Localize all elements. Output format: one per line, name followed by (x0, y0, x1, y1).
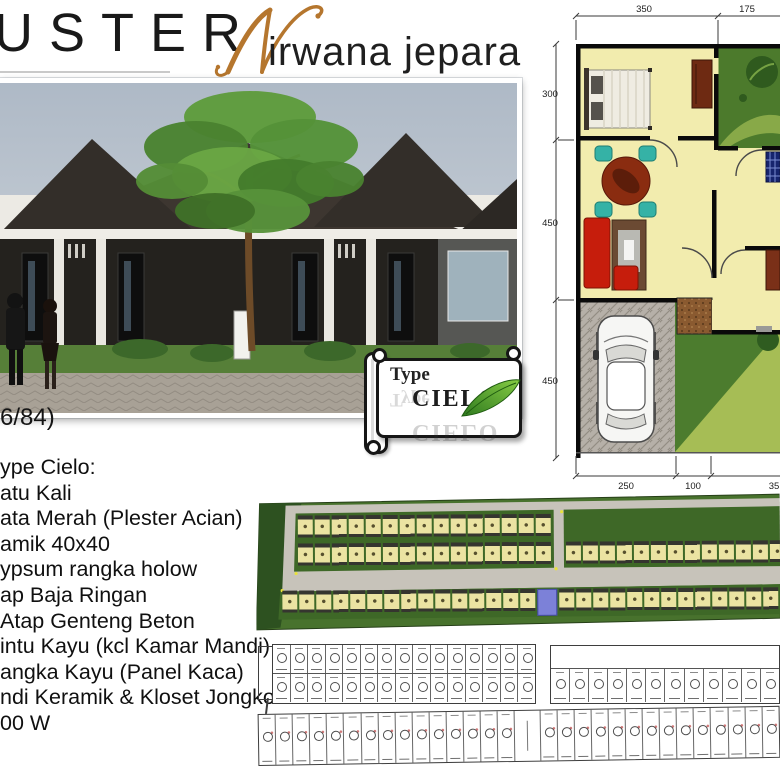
plot-cell (589, 669, 608, 702)
plot-cell (293, 714, 311, 764)
schematic-row (273, 674, 535, 702)
plot-cell (761, 669, 779, 702)
plot-cell (447, 712, 465, 762)
plot-cell (728, 707, 746, 757)
plot-schematic-drawing (256, 636, 780, 780)
house-plot (417, 515, 432, 540)
plot-cell (762, 707, 779, 757)
plot-cell (326, 645, 344, 673)
spec-line: intu Kayu (kcl Kamar Mandi) (0, 634, 256, 660)
house-plot (746, 587, 761, 614)
house-plot (383, 515, 398, 540)
house-plot (736, 540, 751, 565)
schematic-block-top-left (272, 644, 536, 704)
plot-cell (694, 708, 712, 758)
house-plot (315, 543, 330, 568)
house-plot (610, 588, 625, 615)
house-plot (435, 589, 450, 616)
schematic-left-block (258, 646, 273, 700)
house-plot (536, 542, 551, 567)
house-plot (593, 588, 608, 615)
plot-cell (466, 645, 484, 673)
sign-line1: Type (390, 364, 430, 386)
brochure-page: USTER irwana jepara (0, 0, 780, 780)
house-plot (282, 591, 297, 618)
bath-floor (677, 298, 712, 334)
dim-top-1: 350 (636, 4, 652, 15)
house-plot (617, 541, 632, 566)
house-plot (349, 515, 364, 540)
plot-cell (677, 708, 695, 758)
unit-size-caption: 6/84) (0, 404, 55, 432)
house-plot (451, 514, 466, 539)
house-plot (702, 541, 717, 566)
spec-line: angka Kayu (Panel Kaca) (0, 660, 256, 686)
house-plot (503, 589, 518, 616)
spec-line: 00 W (0, 711, 256, 737)
house-plot (468, 514, 483, 539)
siteplan-row-top-right (566, 540, 780, 566)
plot-cell (515, 711, 541, 761)
house-plot (315, 515, 330, 540)
house-plot (519, 542, 534, 567)
plot-cell (574, 710, 592, 760)
plot-cell (291, 645, 309, 673)
house-plot (763, 587, 778, 614)
plot-cell (448, 674, 466, 702)
plot-cell (723, 669, 742, 702)
plot-cell (273, 674, 291, 702)
house-plot (400, 515, 415, 540)
house-plot (719, 540, 734, 565)
plot-cell (704, 669, 723, 702)
house-plot (298, 543, 313, 568)
bed (584, 68, 652, 130)
plot-cell (466, 674, 484, 702)
house-plot (695, 588, 710, 615)
plot-cell (378, 674, 396, 702)
spec-list: ype Cielo: atu Kali ata Merah (Plester A… (0, 455, 256, 737)
house-plot (333, 590, 348, 617)
plot-cell (518, 674, 535, 702)
blue-grid-panel (766, 152, 780, 182)
wardrobe (692, 60, 712, 108)
house-plot (627, 588, 642, 615)
plot-cell (327, 714, 345, 764)
house-plot (559, 589, 574, 616)
plot-cell (626, 709, 644, 759)
spec-line: atu Kali (0, 481, 256, 507)
house-plot (451, 542, 466, 567)
dim-top-2: 175 (739, 4, 755, 15)
plot-cell (361, 645, 379, 673)
plot-cell (501, 645, 519, 673)
house-plot (712, 588, 727, 615)
plot-cell (308, 674, 326, 702)
house-plot (366, 543, 381, 568)
plot-cell (310, 714, 328, 764)
house-plot (469, 589, 484, 616)
plot-cell (745, 707, 763, 757)
dim-left-3: 450 (542, 376, 558, 387)
leaf-icon (460, 376, 522, 418)
plot-cell (308, 645, 326, 673)
house-plot (668, 541, 683, 566)
plot-cell (430, 712, 448, 762)
house-plot (661, 588, 676, 615)
project-name: irwana jepara (268, 30, 521, 75)
plot-cell (378, 713, 396, 763)
plot-cell (361, 713, 379, 763)
pin-icon (366, 440, 381, 455)
plot-cell (396, 674, 414, 702)
header-divider (0, 71, 170, 73)
plot-cell (344, 713, 362, 763)
house-plot (583, 541, 598, 566)
spec-line: Atap Genteng Beton (0, 609, 256, 635)
schematic-bottom-strip (258, 706, 780, 766)
dim-left-2: 450 (542, 218, 558, 229)
siteplan-row-bottom (282, 587, 780, 617)
spec-line: ata Merah (Plester Acian) (0, 506, 256, 532)
plot-cell (395, 713, 413, 763)
plot-cell (361, 674, 379, 702)
plot-cell (273, 645, 291, 673)
plot-cell (608, 709, 626, 759)
house-plot (349, 543, 364, 568)
facade (0, 239, 517, 351)
house-plot (502, 542, 517, 567)
house-plot (678, 588, 693, 615)
schematic-row (259, 707, 780, 765)
plot-cell (685, 669, 704, 702)
house-plot (316, 590, 331, 617)
type-cielo-sign: Type CIELO Type CIELO (364, 336, 524, 440)
plot-cell (551, 669, 570, 702)
plot-cell (259, 715, 277, 765)
house-plot (634, 541, 649, 566)
house-plot (770, 540, 780, 565)
plot-cell (742, 669, 761, 702)
house-plot (644, 588, 659, 615)
plot-cell (431, 645, 449, 673)
plot-cell (665, 669, 684, 702)
plot-cell (483, 645, 501, 673)
plot-cell (501, 674, 519, 702)
plot-cell (343, 674, 361, 702)
house-plot (350, 590, 365, 617)
plot-cell (711, 708, 729, 758)
siteplan-row-top-left-2 (298, 542, 554, 569)
plot-cell (412, 712, 430, 762)
schematic-row (273, 645, 535, 674)
plan-garden (718, 48, 780, 148)
spec-line: ndi Keramik & Kloset Jongkok (0, 685, 256, 711)
house-plot (417, 543, 432, 568)
house-plot (452, 589, 467, 616)
house-plot (520, 589, 535, 616)
plot-cell (557, 710, 575, 760)
plot-cell (660, 708, 678, 758)
house-plot (753, 540, 768, 565)
site-master-plan (256, 490, 780, 636)
house-plot (486, 589, 501, 616)
plot-cell (608, 669, 627, 702)
wall-opening (714, 58, 719, 74)
plot-cell (570, 669, 589, 702)
car-top-view (593, 316, 659, 442)
rear-terrace (712, 300, 780, 335)
spec-line: ap Baja Ringan (0, 583, 256, 609)
house-plot (651, 541, 666, 566)
plot-cell (326, 674, 344, 702)
sign-line2-reflection: CIELO (412, 418, 499, 445)
house-plot (401, 590, 416, 617)
spec-line: ype Cielo: (0, 455, 256, 481)
house-plot (537, 589, 557, 616)
plot-cell (448, 645, 466, 673)
house-plot (366, 515, 381, 540)
plot-cell (396, 645, 414, 673)
schematic-row (551, 668, 779, 702)
house-plot (485, 542, 500, 567)
plot-cell (591, 709, 609, 759)
pin-icon (506, 346, 521, 361)
plot-cell (518, 645, 535, 673)
spec-line: ypsum rangka holow (0, 557, 256, 583)
plot-cell (413, 674, 431, 702)
house-plot (298, 515, 313, 540)
siteplan-row-top-left-1 (298, 514, 554, 541)
plot-cell (378, 645, 396, 673)
dim-left-1: 300 (542, 89, 558, 100)
house-plot (600, 541, 615, 566)
house-plot (485, 514, 500, 539)
spec-line: amik 40x40 (0, 532, 256, 558)
house-plot (502, 514, 517, 539)
house-plot (729, 587, 744, 614)
house-plot (566, 542, 581, 567)
floor-plan: 350 175 300 450 450 250 100 35 (540, 0, 780, 496)
plot-cell (481, 711, 499, 761)
house-plot (685, 541, 700, 566)
house-plot (383, 543, 398, 568)
plot-cell (646, 669, 665, 702)
plot-edge (576, 452, 780, 454)
house-plot (367, 590, 382, 617)
house-plot (384, 590, 399, 617)
house-plot (299, 590, 314, 617)
plot-cell (291, 674, 309, 702)
house-plot (434, 542, 449, 567)
plot-cell (627, 669, 646, 702)
plot-cell (483, 674, 501, 702)
house-plot (332, 515, 347, 540)
house-plot (418, 590, 433, 617)
plot-cell (643, 709, 661, 759)
house-plot (434, 514, 449, 539)
living-set (584, 218, 646, 290)
house-plot (519, 514, 534, 539)
plan-door-panel (766, 250, 780, 290)
house-plot (332, 543, 347, 568)
schematic-block-top-right (550, 645, 780, 704)
plot-cell (413, 645, 431, 673)
house-plot (536, 514, 551, 539)
plot-cell (276, 714, 294, 764)
pin-icon (372, 348, 387, 363)
plot-cell (498, 711, 516, 761)
plot-cell (540, 710, 558, 760)
house-plot (468, 542, 483, 567)
house-plot (576, 588, 591, 615)
plot-cell (464, 711, 482, 761)
plot-cell (343, 645, 361, 673)
house-plot (400, 543, 415, 568)
plot-cell (431, 674, 449, 702)
